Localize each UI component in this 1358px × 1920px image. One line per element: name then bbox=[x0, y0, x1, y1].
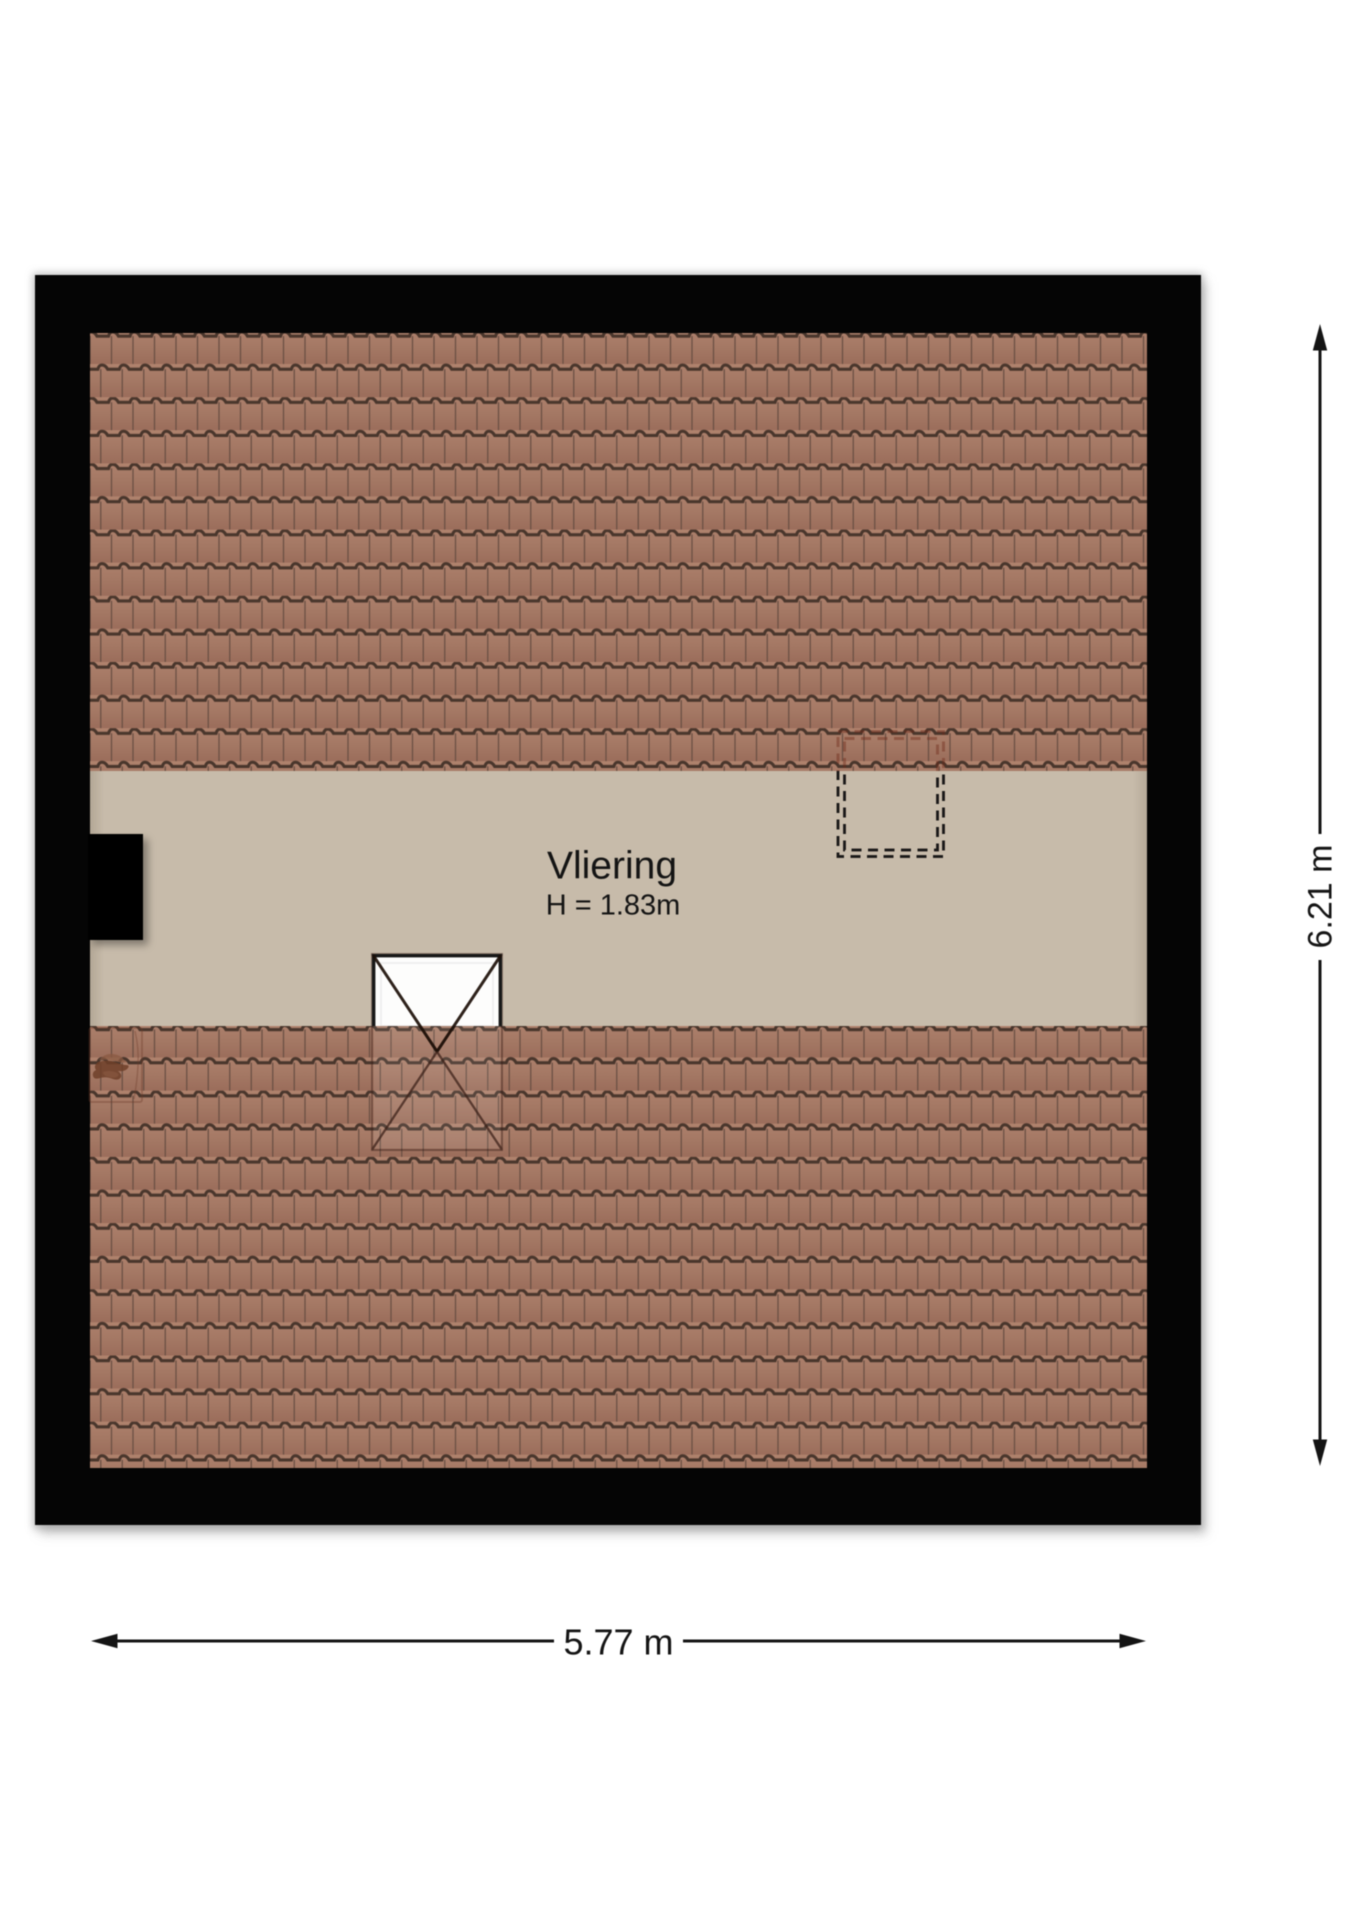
svg-text:6.21 m: 6.21 m bbox=[1302, 845, 1340, 949]
svg-text:Vliering: Vliering bbox=[547, 845, 677, 888]
svg-text:5.77 m: 5.77 m bbox=[563, 1622, 673, 1663]
svg-text:H = 1.83m: H = 1.83m bbox=[546, 890, 681, 922]
